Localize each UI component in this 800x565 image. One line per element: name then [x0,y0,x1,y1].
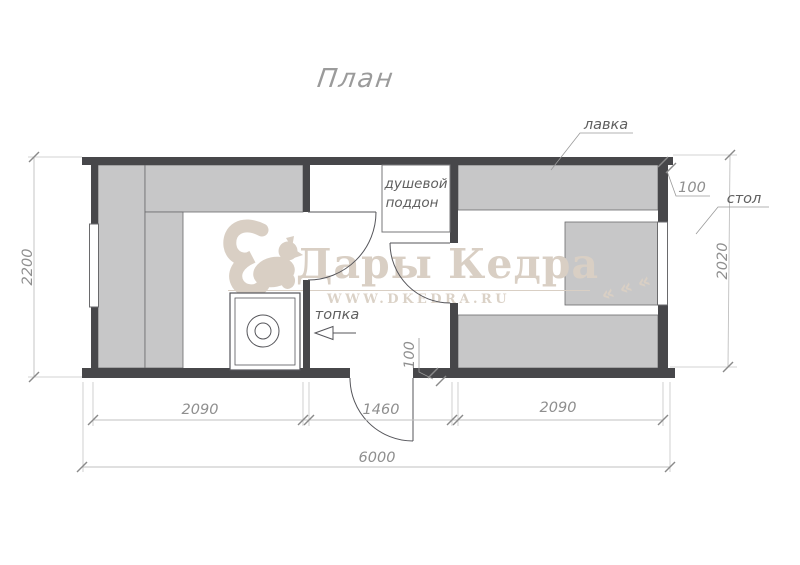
walls [82,157,675,378]
plan-drawing: душевой поддон топка [0,0,800,565]
window-right-wall [658,222,668,305]
stove-outer [230,293,300,370]
dim-bottom-wall-thickness: 100 [402,341,418,369]
wall-left-upper [91,157,98,224]
furnace-callout: топка [315,307,359,340]
door-swing-rest-room [390,243,450,303]
dim-left-room-width: 2090 [182,402,219,418]
windows [90,222,668,307]
partition-left-upper [303,165,310,212]
shower-tray: душевой поддон [382,165,450,232]
partition-right-lower [450,303,458,368]
floor-plan-page: План « « « [0,0,800,565]
dim-top-wall-thickness: 100 [678,180,706,196]
shower-tray-label-line1: душевой [384,176,448,192]
dim-overall-width: 6000 [359,450,396,466]
shower-tray-label-line2: поддон [386,195,439,211]
partition-right-upper [450,165,458,243]
partition-left-lower [303,280,310,368]
leader-table [696,207,769,234]
dim-overall-depth: 2200 [20,249,36,286]
window-left-wall [90,224,99,307]
wall-right-upper [658,165,668,222]
dim-right-room-width: 2090 [540,400,577,416]
table-label: стол [727,191,762,207]
bench-label: лавка [583,117,628,133]
wall-top [82,157,673,165]
furnace-label: топка [315,307,359,323]
dim-right-room-depth: 2020 [715,243,731,280]
dim-middle-room-width: 1460 [363,402,400,418]
wall-left-lower [91,307,98,378]
door-swing-sauna [308,212,376,280]
wall-bottom-left [82,368,350,378]
furnace-arrow-head-icon [315,327,333,340]
wall-right-lower [658,305,668,368]
wall-bottom-right [413,368,675,378]
stove [230,293,300,370]
